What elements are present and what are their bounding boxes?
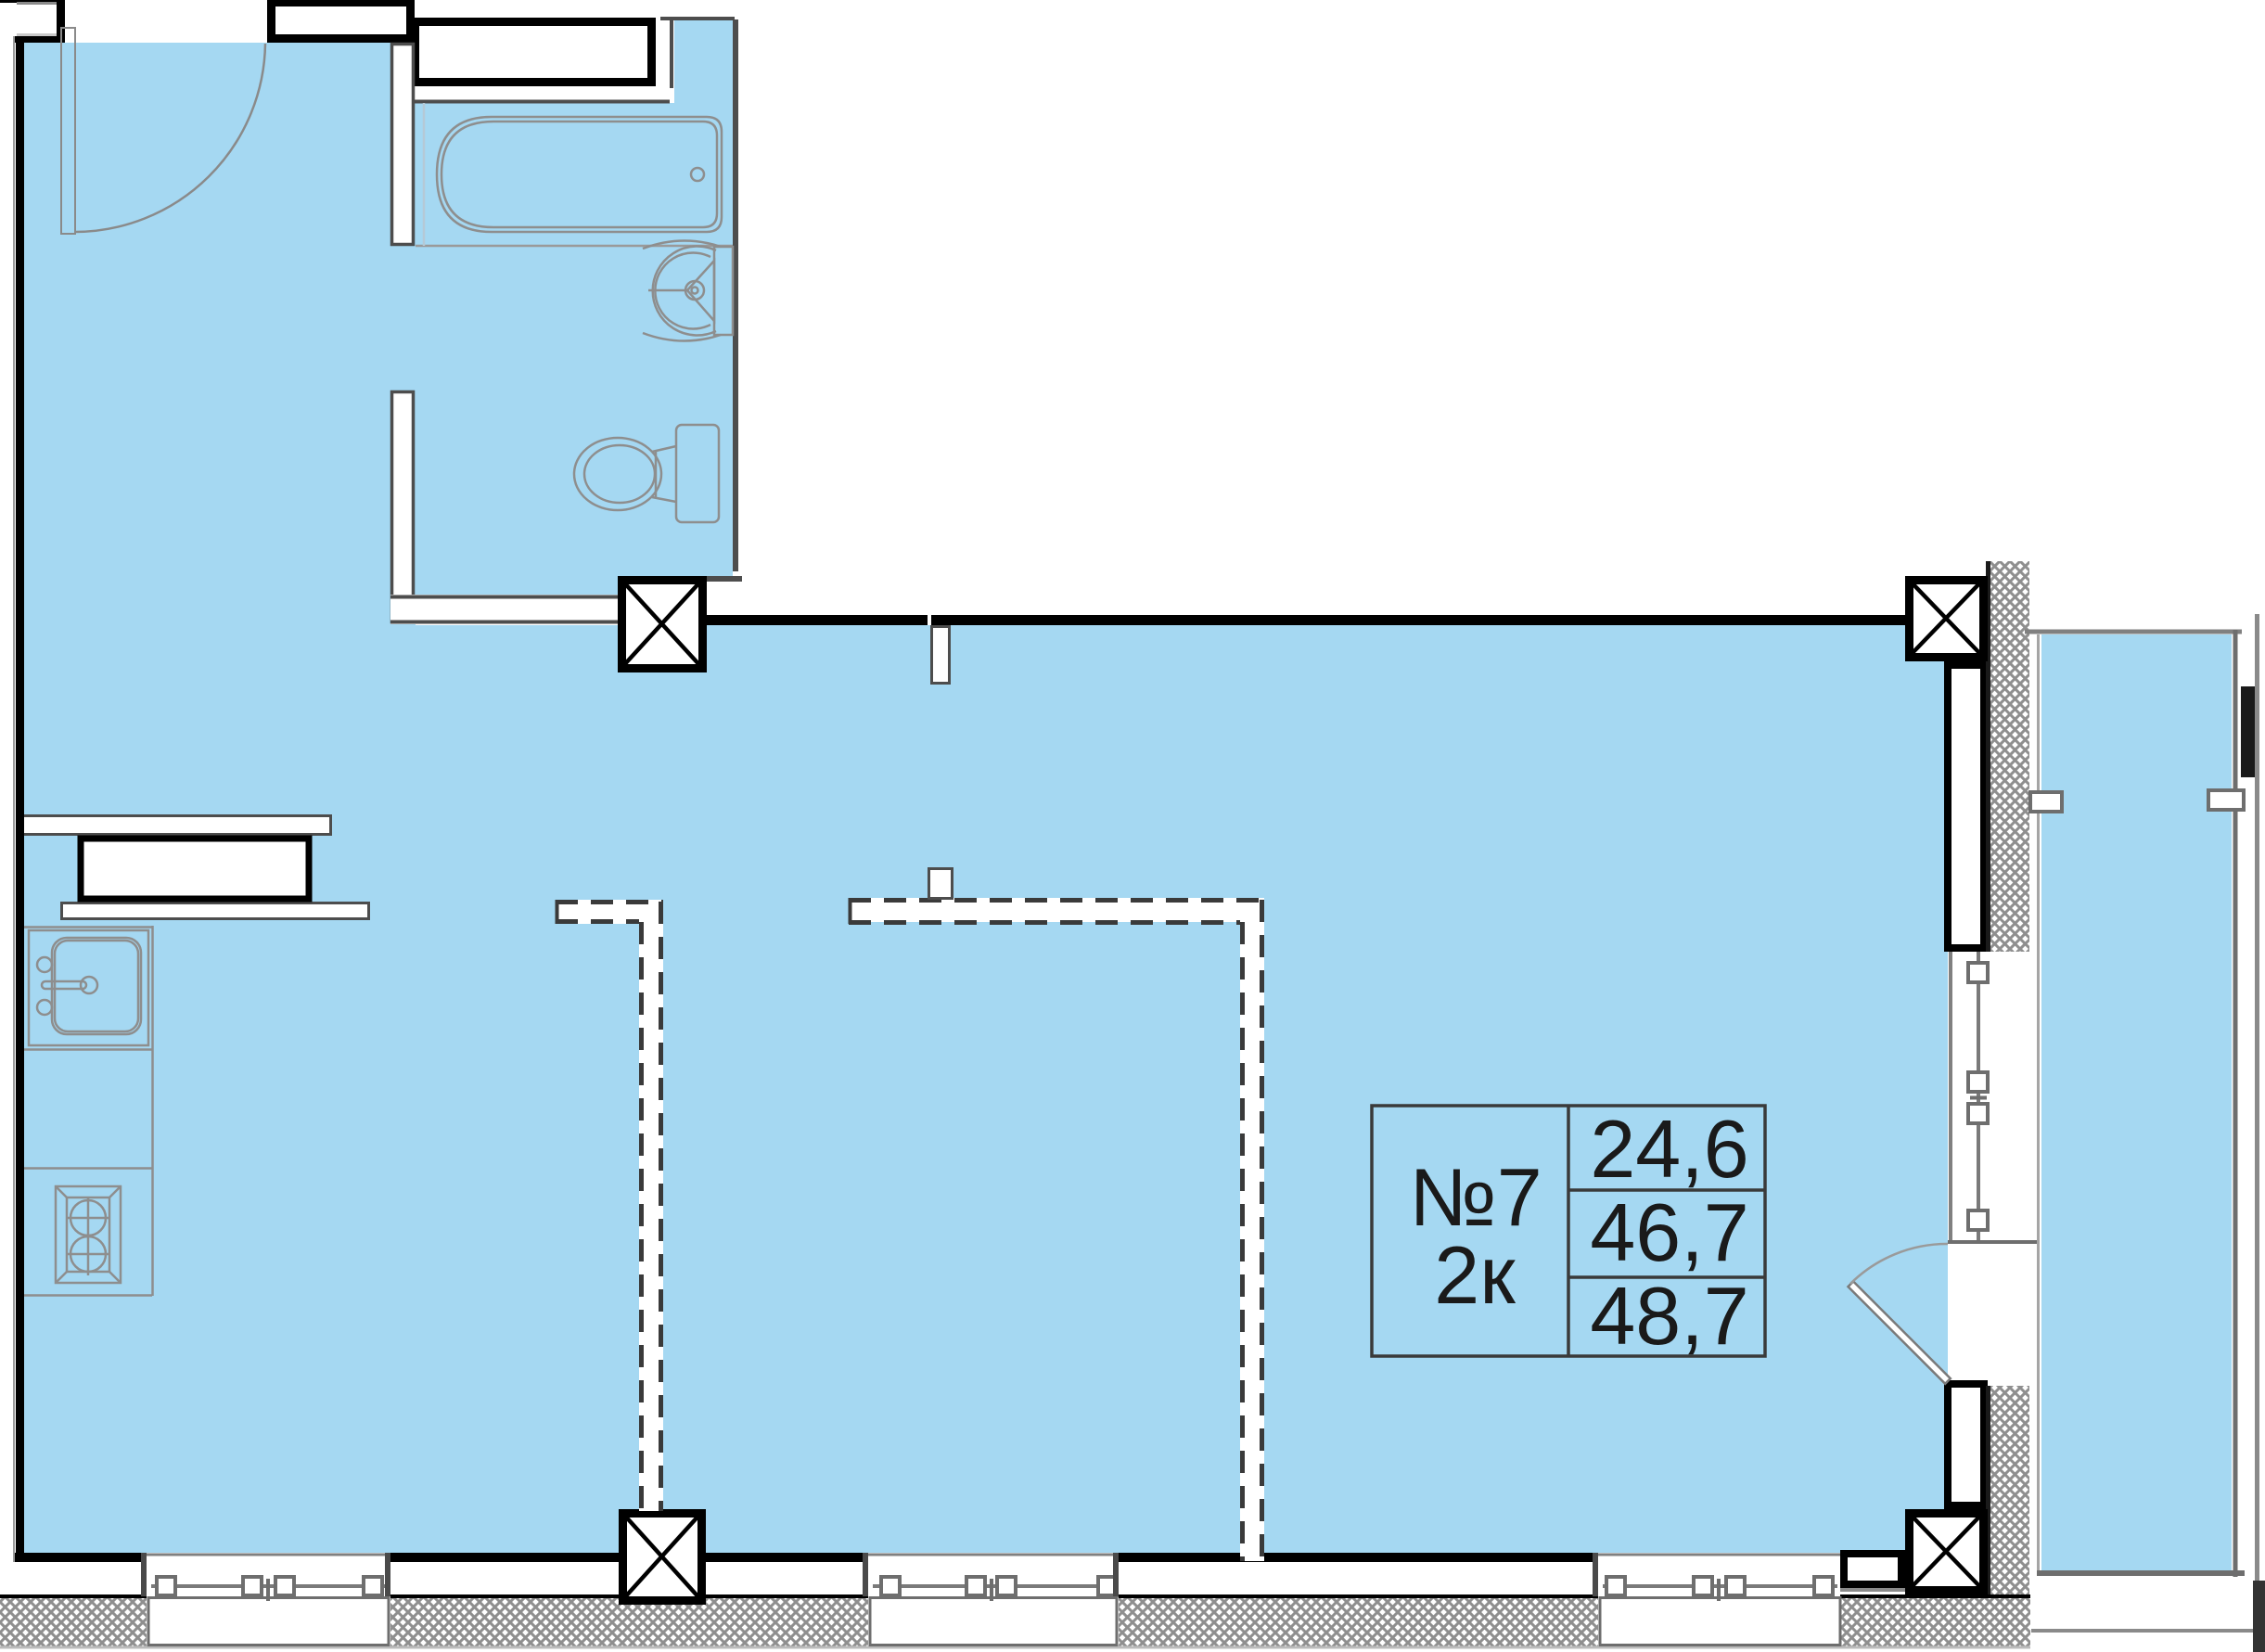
svg-text:2к: 2к xyxy=(1434,1229,1516,1321)
svg-text:48,7: 48,7 xyxy=(1590,1270,1748,1362)
svg-text:46,7: 46,7 xyxy=(1590,1186,1748,1278)
svg-text:24,6: 24,6 xyxy=(1590,1103,1748,1195)
